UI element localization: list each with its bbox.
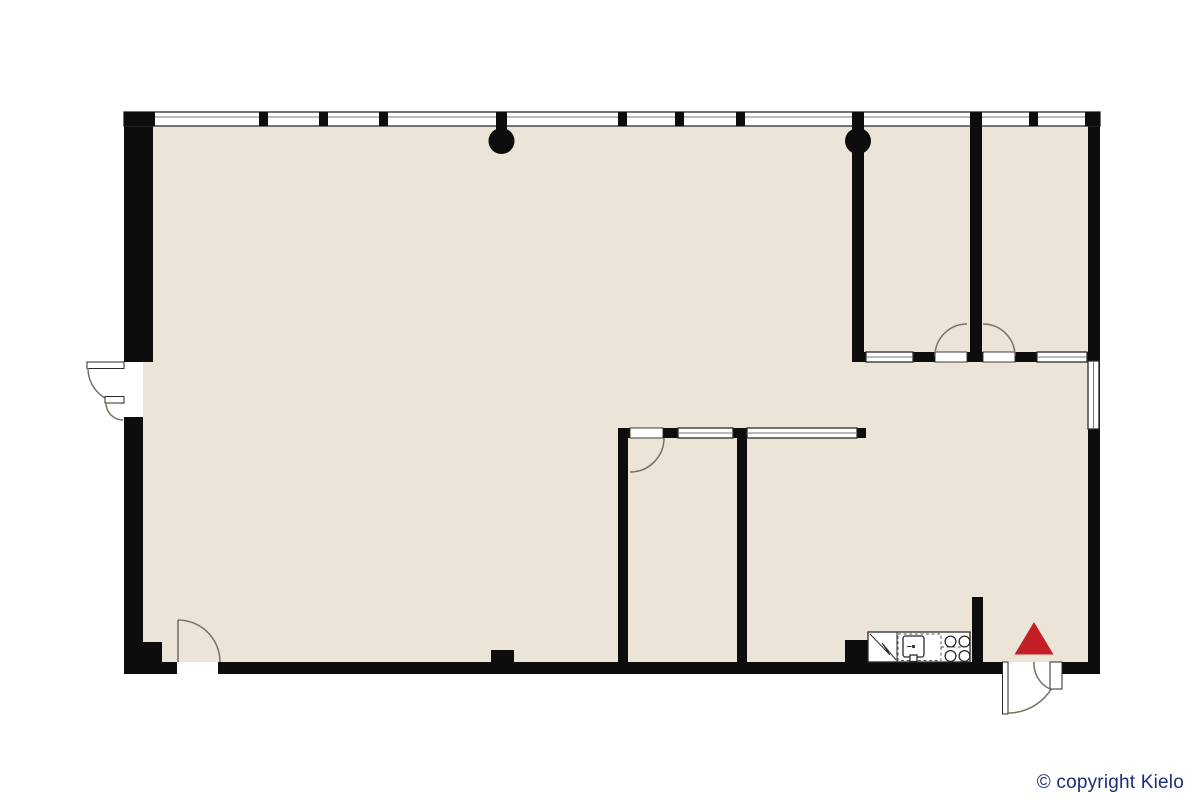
wall-corner: [124, 112, 155, 126]
interior-window: [678, 428, 733, 438]
bottom-wall: [124, 662, 1100, 674]
top-window-band: [124, 112, 1100, 126]
window-mullion: [1029, 112, 1038, 126]
wall-room-c-d-divider: [737, 438, 747, 662]
copyright-text: © copyright Kielo: [1037, 772, 1184, 794]
wall-pilaster: [491, 650, 514, 662]
wall-stub: [845, 640, 868, 662]
room-a-door-opening: [935, 352, 967, 362]
structural-column: [845, 128, 871, 154]
wall-corner: [1085, 112, 1100, 126]
floor-plan-drawing: [0, 0, 1200, 800]
bottom-left-door-opening: [177, 662, 218, 674]
wall-room-c-left: [618, 438, 628, 662]
room-c-door-opening: [630, 428, 663, 438]
window-mullion: [618, 112, 627, 126]
stove-burner: [959, 651, 970, 662]
window-mullion: [736, 112, 745, 126]
left-exterior-door-opening: [124, 362, 143, 417]
room-b-door-opening: [983, 352, 1015, 362]
stove-burner: [945, 636, 956, 647]
floor-plan-page: © copyright Kielo: [0, 0, 1200, 800]
column-stem: [496, 112, 507, 130]
kitchen-stub-wall: [972, 597, 983, 662]
structural-column: [489, 128, 515, 154]
left-wall-thick-section: [143, 112, 153, 362]
kitchenette: [868, 632, 970, 662]
left-exterior-double-door: [87, 362, 124, 420]
interior-window: [747, 428, 857, 438]
sink-tap: [910, 655, 917, 662]
interior-window: [1037, 352, 1087, 362]
stove-burner: [959, 636, 970, 647]
sink-drain: [912, 645, 915, 648]
window-mullion: [259, 112, 268, 126]
window-mullion: [675, 112, 684, 126]
interior-window: [866, 352, 913, 362]
wall-stub: [143, 642, 162, 662]
wall-room-a-b-divider: [970, 112, 982, 352]
stove-burner: [945, 651, 956, 662]
floor: [143, 126, 1088, 662]
window-mullion: [319, 112, 328, 126]
right-wall-window: [1088, 361, 1099, 429]
top-window-wall: [124, 112, 1100, 126]
window-mullion: [379, 112, 388, 126]
